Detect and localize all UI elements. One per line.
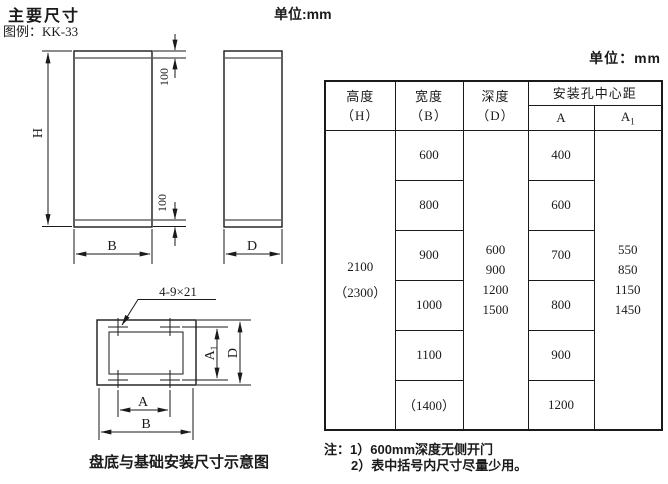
dimension-label-a: A [138,395,149,410]
drawings-svg: H 100 100 B [0,0,330,484]
base-view-caption: 盘底与基础安装尺寸示意图 [84,451,274,472]
dimension-label-d-side: D [247,239,257,254]
front-view-panel-lines [75,58,151,220]
mounting-hole-marks [108,318,180,388]
d-dimension-side: D [224,229,282,264]
col-header-a1: A1 [594,105,662,130]
cell-width-3: 900 [395,230,463,280]
cell-width-5: 1100 [395,330,463,380]
note-line-2: 2）表中括号内尺寸尽量少用。 [324,458,527,474]
col-header-height: 高度 （H） [325,81,395,130]
col-header-width: 宽度 （B） [395,81,463,130]
front-view-outline [74,51,152,227]
h-dimension: H [31,51,72,227]
bottom-100-dimension: 100 [153,194,186,246]
col-header-a: A [528,105,594,130]
cell-a-3: 700 [528,230,594,280]
dimension-label-h: H [31,128,46,138]
holes-callout-label: 4-9×21 [159,284,197,299]
a1-dimension: A1 [182,327,228,380]
base-outer-outline [97,320,196,385]
base-view: 4-9×21 A1 D A [97,284,251,440]
col-header-hole-span: 安装孔中心距 [528,81,662,105]
dimension-table-wrap: 高度 （H） 宽度 （B） 深度 （D） 安装孔中心距 A A1 2 [324,80,663,431]
cell-width-1: 600 [395,130,463,180]
cell-a1: 550 850 1150 1450 [594,130,662,430]
cell-width-2: 800 [395,180,463,230]
dimension-label-b-base: B [141,417,150,432]
cell-a-5: 900 [528,330,594,380]
cell-a-4: 800 [528,280,594,330]
cell-depth: 600 900 1200 1500 [463,130,528,430]
cell-height: 2100 （2300） [325,130,395,430]
side-view-outline [224,51,282,227]
dimension-label-top-100: 100 [157,68,171,86]
front-view: H 100 100 B [31,34,186,264]
unit-label-table: 单位：mm [530,48,661,68]
dimension-label-b-front: B [107,239,116,254]
side-view-panel-lines [225,58,281,220]
holes-callout: 4-9×21 [122,284,216,325]
dimension-label-bottom-100: 100 [155,194,169,212]
table-notes: 注：1）600mm深度无侧开门 2）表中括号内尺寸尽量少用。 [324,442,527,474]
cell-a-2: 600 [528,180,594,230]
dimension-label-a1: A1 [203,346,219,361]
note-line-1: 注：1）600mm深度无侧开门 [324,442,527,458]
cell-width-4: 1000 [395,280,463,330]
dimension-table: 高度 （H） 宽度 （B） 深度 （D） 安装孔中心距 A A1 2 [324,80,663,431]
side-view: D [224,51,282,264]
col-header-depth: 深度 （D） [463,81,528,130]
a-dimension: A [118,390,170,417]
top-100-dimension: 100 [153,34,186,86]
cell-a-1: 400 [528,130,594,180]
document-page: 主要尺寸 图例：KK-33 单位:mm 单位：mm H [0,0,668,484]
base-inner-outline [109,332,183,374]
cell-a-6: 1200 [528,380,594,430]
b-dimension-front: B [74,229,152,264]
cell-width-6: （1400） [395,380,463,430]
dimension-label-d-base: D [226,348,241,358]
